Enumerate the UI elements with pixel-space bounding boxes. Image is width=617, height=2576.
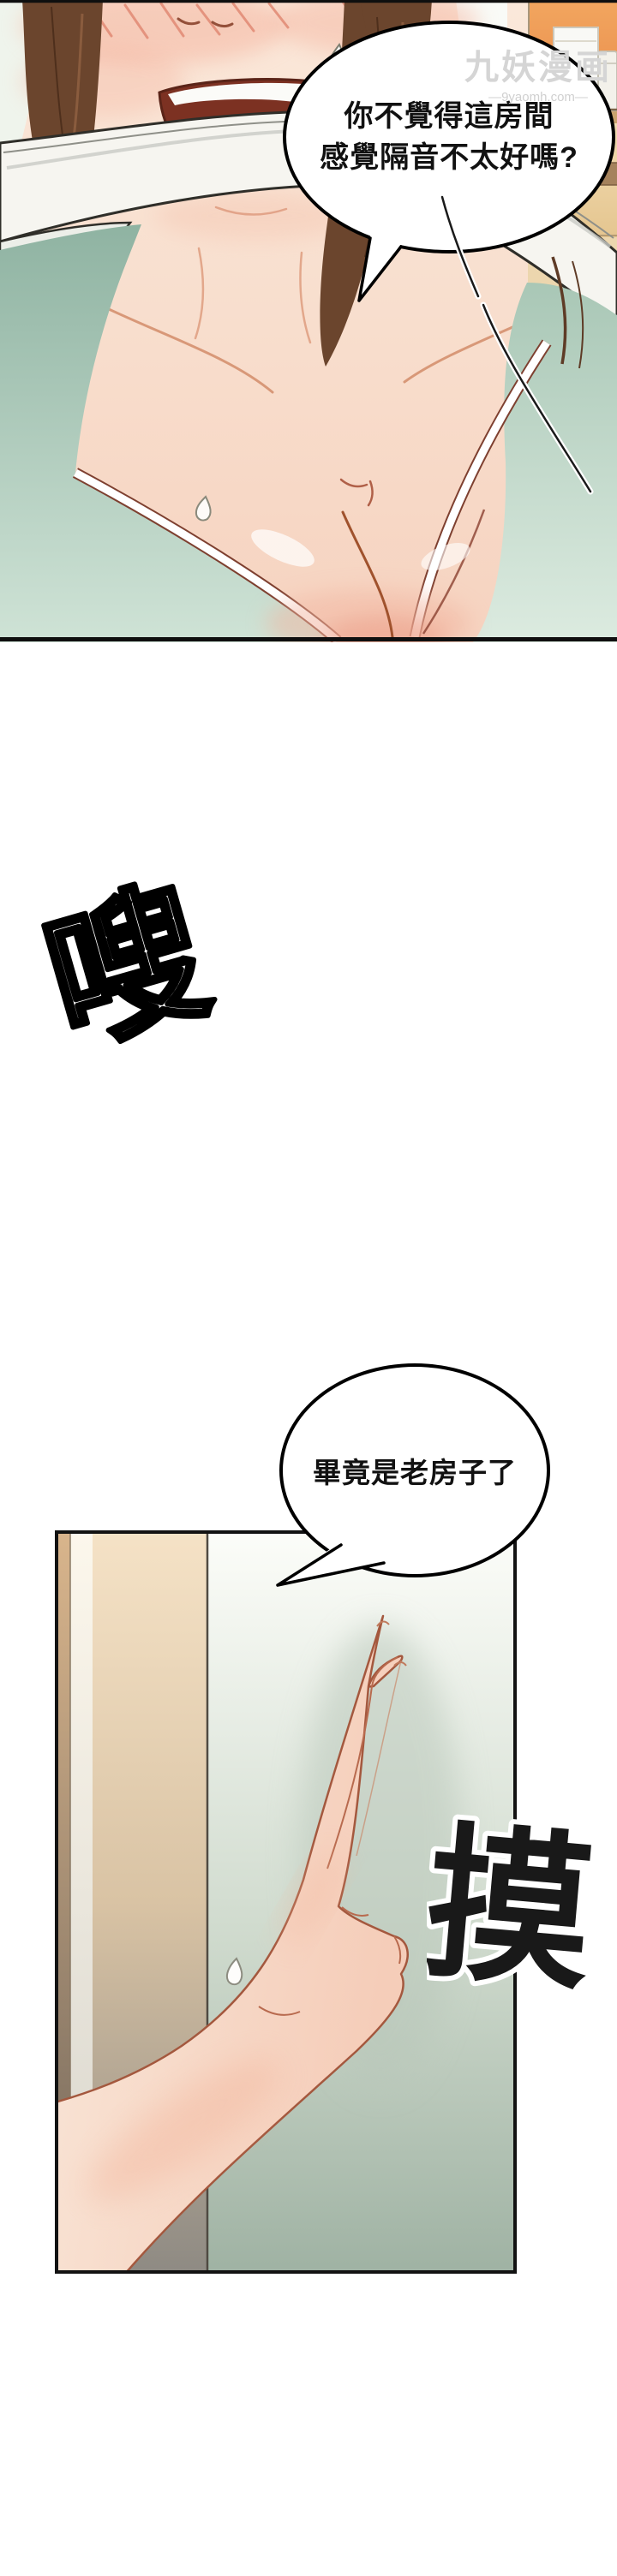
pointer-line	[433, 190, 604, 498]
sfx-swish: 嗖	[24, 852, 225, 1070]
bubble-2-tail	[266, 1537, 394, 1597]
comic-page: 嗖 你不覺得這房間 感覺隔音不太好嗎? 九妖漫画 —9yaomh.com—	[0, 0, 617, 2576]
svg-text:嗖: 嗖	[29, 865, 225, 1070]
svg-text:摸: 摸	[427, 1810, 594, 2010]
bubble-2-line-1: 畢竟是老房子了	[313, 1450, 517, 1491]
sfx-touch: 摸	[427, 1783, 594, 2023]
bubble-1-tail	[347, 231, 416, 313]
bubble-1-line-2: 感覺隔音不太好嗎?	[320, 137, 578, 178]
bubble-1-line-1: 你不覺得這房間	[344, 96, 554, 137]
